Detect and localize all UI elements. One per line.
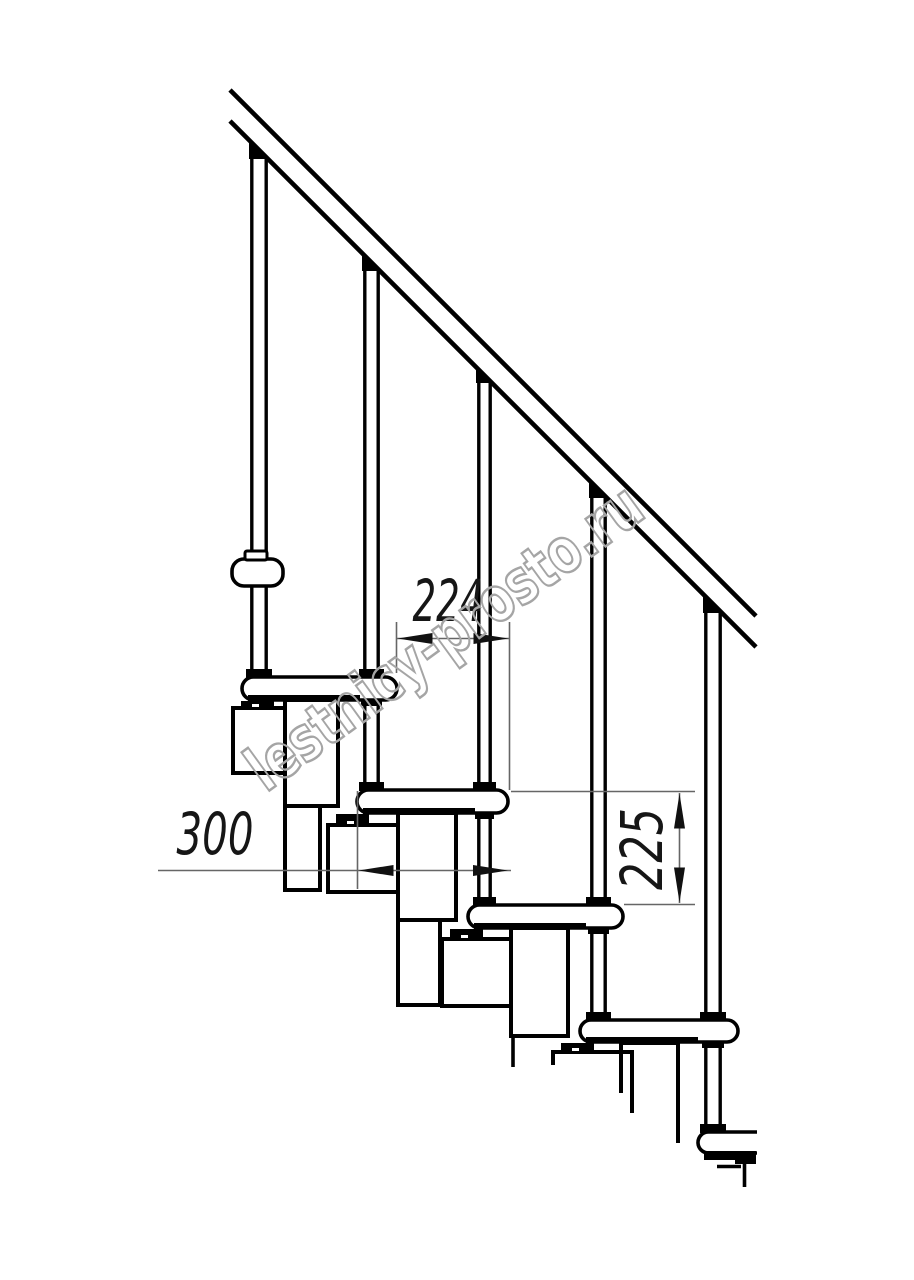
module-tube-extension [398, 920, 440, 1005]
handrail-bracket-collar [245, 551, 267, 560]
baluster-collar [700, 1124, 726, 1133]
baluster-collar [586, 1012, 611, 1021]
module-tube [511, 928, 568, 1036]
baluster-collar [700, 1012, 726, 1021]
module-square [328, 825, 402, 892]
tread-underside-strip [363, 808, 475, 814]
module-tube-extension [285, 806, 320, 890]
handrail-bracket [232, 559, 283, 586]
stair-drawing-page: 224300225lestnicy-prosto.ru [0, 0, 914, 1280]
tread-underside-strip [474, 923, 586, 929]
tread-underside-strip [586, 1037, 698, 1043]
baluster-collar [246, 669, 272, 678]
module-connector-notch [461, 935, 468, 938]
module-connector-notch [347, 821, 354, 824]
dimension-label-300: 300 [177, 800, 254, 868]
baluster-collar [359, 782, 384, 791]
baluster-under-collar [475, 812, 494, 819]
dimension-label-225: 225 [608, 808, 676, 890]
module-connector-notch [572, 1048, 579, 1051]
baluster-collar [586, 897, 611, 906]
stair-technical-drawing-svg: 224300225lestnicy-prosto.ru [0, 0, 914, 1280]
module-tube [398, 813, 456, 920]
module-square [442, 939, 518, 1006]
baluster-under-collar [702, 1041, 724, 1048]
baluster-under-collar [588, 927, 609, 934]
baluster-collar [473, 782, 496, 791]
baluster-collar [473, 897, 496, 906]
module-connector-notch [252, 704, 259, 707]
tread-clipped [698, 1132, 757, 1153]
